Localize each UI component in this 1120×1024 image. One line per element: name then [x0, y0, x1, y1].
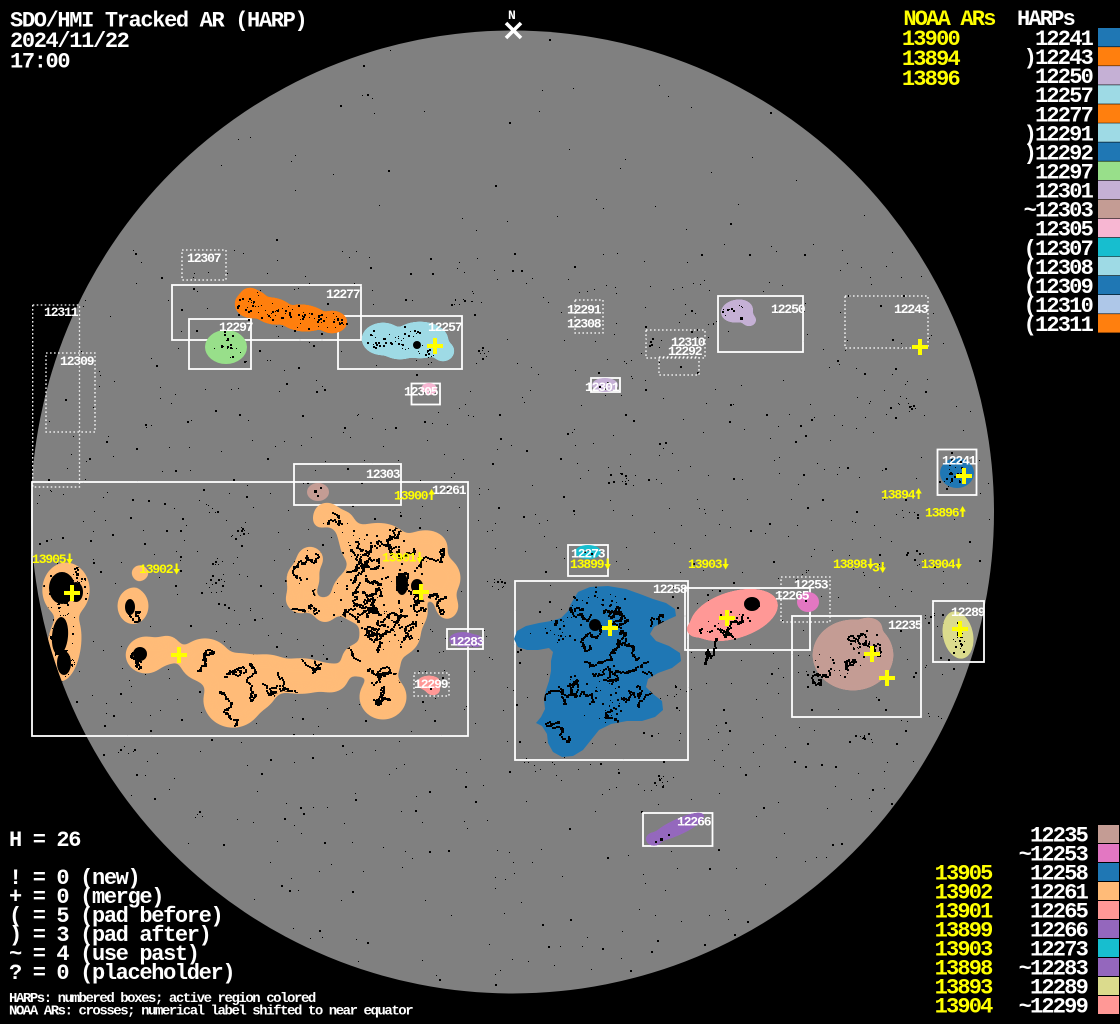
svg-text:12241: 12241: [942, 454, 977, 469]
svg-text:12283: 12283: [450, 635, 485, 650]
svg-text:? = 0 (placeholder): ? = 0 (placeholder): [9, 961, 234, 986]
svg-text:13902: 13902: [139, 562, 174, 577]
svg-text:H = 26: H = 26: [9, 828, 80, 853]
svg-text:(12311: (12311: [1024, 313, 1094, 338]
svg-text:12311: 12311: [44, 305, 79, 320]
svg-text:12261: 12261: [432, 483, 467, 498]
svg-text:12292: 12292: [668, 344, 703, 359]
svg-text:17:00: 17:00: [10, 49, 69, 74]
svg-text:13894: 13894: [881, 488, 916, 503]
svg-text:12307: 12307: [187, 251, 221, 266]
svg-text:12257: 12257: [428, 320, 462, 335]
svg-text:12291: 12291: [567, 303, 602, 318]
svg-text:12301: 12301: [585, 380, 620, 395]
svg-text:12309: 12309: [60, 354, 95, 369]
svg-text:12250: 12250: [771, 302, 806, 317]
svg-text:~12299: ~12299: [1019, 995, 1088, 1020]
svg-text:13898: 13898: [833, 557, 868, 572]
svg-text:12258: 12258: [653, 582, 688, 597]
svg-text:13901: 13901: [382, 551, 417, 566]
svg-text:12303: 12303: [366, 467, 401, 482]
svg-text:13899: 13899: [570, 557, 605, 572]
svg-text:13896: 13896: [925, 506, 960, 521]
svg-text:13904: 13904: [921, 557, 956, 572]
svg-text:13900: 13900: [394, 489, 429, 504]
svg-text:12299: 12299: [414, 677, 449, 692]
svg-text:12266: 12266: [677, 815, 712, 830]
svg-text:12289: 12289: [951, 605, 986, 620]
svg-text:13903: 13903: [688, 557, 723, 572]
svg-text:13904: 13904: [935, 995, 994, 1020]
svg-text:12305: 12305: [404, 385, 439, 400]
svg-text:12297: 12297: [219, 320, 253, 335]
svg-text:12265: 12265: [775, 589, 810, 604]
svg-text:13905: 13905: [32, 552, 67, 567]
svg-text:13896: 13896: [902, 67, 960, 92]
svg-text:N: N: [508, 8, 515, 23]
svg-text:12235: 12235: [888, 618, 923, 633]
svg-text:12277: 12277: [326, 287, 360, 302]
svg-text:12243: 12243: [894, 302, 929, 317]
svg-text:12308: 12308: [567, 317, 602, 332]
svg-text:NOAA ARs: crosses; numerical l: NOAA ARs: crosses; numerical label shift…: [9, 1004, 413, 1020]
